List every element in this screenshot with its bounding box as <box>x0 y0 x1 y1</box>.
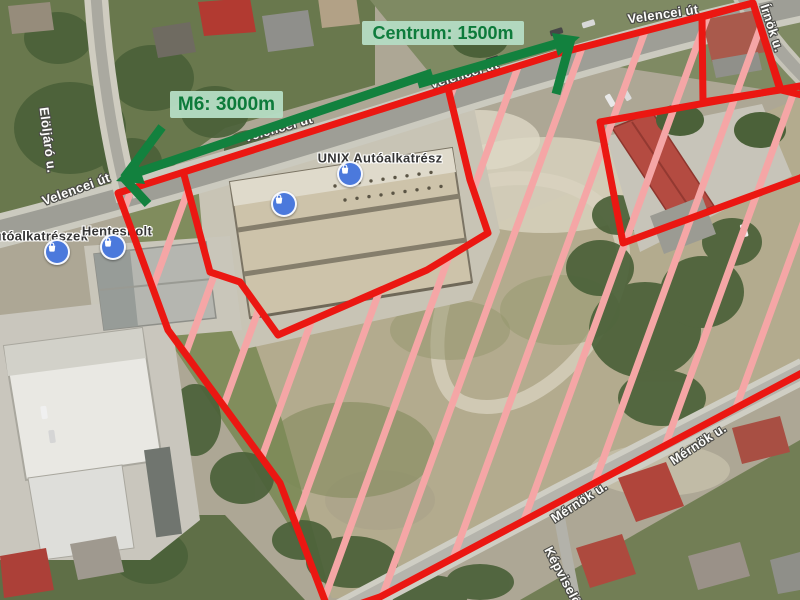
shopping-bag-pin-icon <box>46 241 58 253</box>
shopping-pin[interactable] <box>337 161 363 187</box>
satellite-map[interactable]: Velencei út Velencei út Velencei út Vele… <box>0 0 800 600</box>
shopping-bag-pin-icon <box>339 163 351 175</box>
centrum-distance-text: Centrum: 1500m <box>372 23 513 44</box>
m6-distance-label: M6: 3000m <box>170 91 283 118</box>
centrum-distance-label: Centrum: 1500m <box>362 21 524 45</box>
shopping-bag-pin-icon <box>102 236 114 248</box>
shopping-pin[interactable] <box>271 191 297 217</box>
shopping-pin[interactable] <box>100 234 126 260</box>
satellite-imagery[interactable] <box>0 0 800 600</box>
shopping-pin[interactable] <box>44 239 70 265</box>
shopping-bag-pin-icon <box>273 193 285 205</box>
m6-distance-text: M6: 3000m <box>178 94 275 116</box>
place-label-autoalkatreszek[interactable]: Autóalkatrészek <box>0 229 88 244</box>
place-label-unix-autoalkatresz[interactable]: UNIX Autóalkatrész <box>318 151 443 166</box>
